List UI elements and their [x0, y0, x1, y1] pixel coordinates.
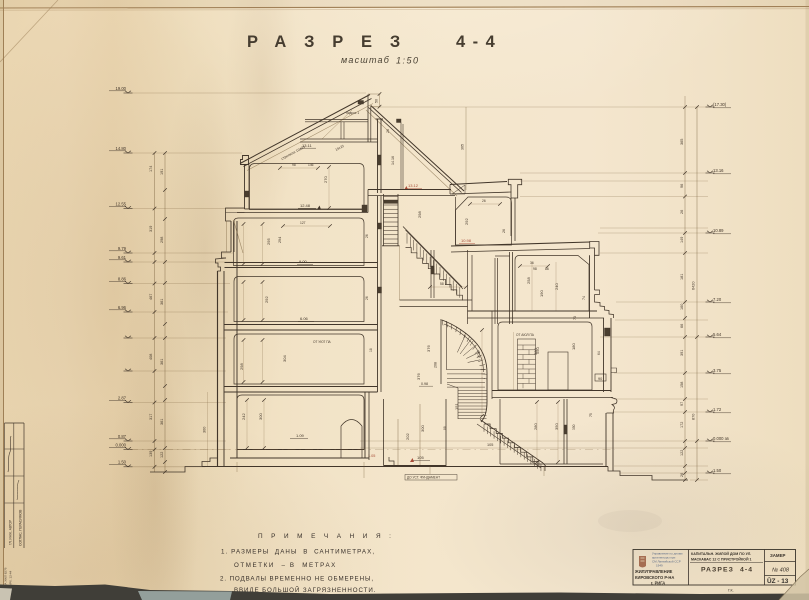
svg-text:240: 240	[554, 283, 559, 290]
svg-text:2. ПОДВАЛЫ ВРЕМЕННО НЕ ОБМЕРЕН: 2. ПОДВАЛЫ ВРЕМЕННО НЕ ОБМЕРЕНЫ,	[220, 576, 374, 583]
svg-text:146: 146	[308, 163, 314, 167]
svg-text:467: 467	[149, 294, 153, 300]
svg-text:ОТ АЮЛ ПА: ОТ АЮЛ ПА	[516, 333, 535, 337]
svg-text:151: 151	[454, 403, 459, 410]
svg-text:РАЗРЕЗ 4-4: РАЗРЕЗ 4-4	[701, 567, 753, 574]
svg-text:1.50: 1.50	[118, 460, 127, 465]
svg-text:5.64: 5.64	[713, 332, 722, 337]
svg-text:105: 105	[417, 455, 424, 460]
svg-text:127: 127	[300, 221, 306, 225]
svg-text:26: 26	[386, 129, 390, 133]
svg-text:174: 174	[149, 166, 153, 172]
svg-text:0.000 зв: 0.000 зв	[713, 436, 730, 441]
svg-text:№ 408: № 408	[772, 568, 790, 574]
svg-text:376: 376	[416, 373, 421, 380]
svg-text:50: 50	[375, 99, 379, 103]
svg-text:64: 64	[597, 351, 601, 355]
svg-text:1.72: 1.72	[713, 407, 722, 412]
svg-text:14.16: 14.16	[391, 156, 395, 165]
svg-text:181: 181	[680, 274, 684, 280]
svg-text:10.98: 10.98	[461, 238, 472, 243]
svg-text:4-4: 4-4	[456, 33, 502, 51]
svg-text:361: 361	[160, 419, 164, 425]
svg-text:242: 242	[241, 413, 246, 420]
svg-text:58: 58	[440, 282, 444, 286]
svg-text:208: 208	[434, 362, 438, 368]
svg-text:202: 202	[405, 433, 410, 440]
svg-text:ŪZ - 13: ŪZ - 13	[767, 577, 789, 585]
svg-text:ГЛ. ИНЖ. АВТОР: ГЛ. ИНЖ. АВТОР	[9, 520, 13, 545]
svg-text:408: 408	[149, 354, 153, 360]
svg-text:ГА УЖЛ 8276: ГА УЖЛ 8276	[4, 567, 8, 586]
svg-text:КАПИТАЛЬН. ЖИЛОЙ ДОМ ПО УЛ.: КАПИТАЛЬН. ЖИЛОЙ ДОМ ПО УЛ.	[691, 552, 751, 556]
svg-text:9.79: 9.79	[118, 246, 127, 251]
svg-text:90: 90	[598, 377, 602, 381]
svg-text:26: 26	[680, 210, 684, 214]
svg-text:26: 26	[365, 234, 369, 238]
svg-text:26: 26	[365, 296, 369, 300]
svg-text:139: 139	[149, 451, 153, 457]
svg-text:270: 270	[323, 176, 328, 183]
svg-text:13.12: 13.12	[408, 183, 419, 188]
svg-text:300: 300	[258, 413, 263, 420]
svg-text:298: 298	[160, 237, 164, 243]
svg-text:СОГЛАС. ГЕРАСИМОВ: СОГЛАС. ГЕРАСИМОВ	[19, 509, 23, 546]
svg-text:г. РИГА: г. РИГА	[651, 581, 665, 586]
svg-text:365: 365	[461, 144, 465, 150]
svg-text:П Р И М Е Ч А Н И Я :: П Р И М Е Ч А Н И Я :	[258, 533, 394, 540]
svg-text:88: 88	[443, 426, 447, 430]
svg-text:300: 300	[203, 427, 207, 433]
svg-text:1:50: 1:50	[396, 56, 420, 66]
svg-text:26: 26	[482, 199, 486, 203]
svg-text:1. РАЗМЕРЫ ДАНЫ В САНТИМЕТР: 1. РАЗМЕРЫ ДАНЫ В САНТИМЕТРАХ,	[221, 549, 375, 556]
svg-text:376: 376	[426, 345, 431, 352]
svg-text:19х23: 19х23	[335, 144, 345, 152]
svg-text:172: 172	[680, 422, 684, 428]
svg-text:96: 96	[680, 184, 684, 188]
svg-text:ЖИЛУПРАВЛЕНИЕ: ЖИЛУПРАВЛЕНИЕ	[634, 569, 673, 574]
svg-text:365: 365	[680, 139, 684, 145]
svg-text:304: 304	[282, 355, 287, 362]
svg-text:105: 105	[487, 443, 493, 447]
svg-text:ЗАМЕР: ЗАМЕР	[770, 553, 786, 558]
svg-text:73: 73	[573, 316, 577, 320]
svg-text:19.00: 19.00	[116, 86, 127, 91]
svg-text:258: 258	[526, 277, 531, 284]
svg-text:МАСКАВАС 12 С ПРИСТРОЙКОЙ 1: МАСКАВАС 12 С ПРИСТРОЙКОЙ 1	[691, 558, 752, 562]
svg-text:9.61: 9.61	[118, 255, 127, 260]
svg-text:КИРОВСКОГО Р-НА: КИРОВСКОГО Р-НА	[635, 575, 674, 580]
svg-text:3.75: 3.75	[713, 368, 722, 373]
svg-text:98: 98	[533, 267, 537, 271]
svg-text:180: 180	[571, 343, 576, 350]
svg-text:97: 97	[680, 402, 684, 406]
svg-text:0.98: 0.98	[421, 382, 428, 386]
svg-text:АРХ. 12-44: АРХ. 12-44	[9, 570, 13, 586]
svg-text:317: 317	[149, 414, 153, 420]
svg-text:295: 295	[266, 238, 271, 245]
svg-text:18: 18	[369, 348, 373, 352]
svg-text:190: 190	[539, 290, 544, 297]
svg-text:ОТМЕТКИ – В МЕТРАХ: ОТМЕТКИ – В МЕТРАХ	[234, 562, 337, 569]
svg-text:6420: 6420	[692, 282, 696, 290]
svg-text:158: 158	[680, 382, 684, 388]
svg-text:380: 380	[533, 348, 538, 355]
svg-text:870: 870	[692, 414, 696, 420]
svg-text:подкос 1: подкос 1	[346, 111, 359, 115]
svg-text:9.00: 9.00	[299, 259, 308, 264]
svg-text:6.06: 6.06	[300, 316, 309, 321]
svg-text:1949: 1949	[656, 564, 663, 568]
svg-text:98: 98	[292, 163, 296, 167]
svg-text:12.48: 12.48	[300, 203, 311, 208]
svg-text:РАЗРЕЗ: РАЗРЕЗ	[247, 33, 418, 51]
svg-text:350: 350	[572, 424, 576, 430]
svg-text:13.11: 13.11	[302, 143, 312, 148]
svg-text:294: 294	[278, 237, 282, 243]
svg-text:0.000: 0.000	[116, 442, 127, 447]
svg-text:13.16: 13.16	[713, 168, 724, 173]
svg-text:8.86: 8.86	[118, 276, 127, 281]
svg-text:(17.30): (17.30)	[713, 102, 727, 107]
svg-text:26: 26	[502, 229, 506, 233]
svg-text:292: 292	[264, 296, 269, 303]
svg-text:12.55: 12.55	[116, 201, 127, 206]
svg-text:10.89: 10.89	[713, 228, 724, 233]
svg-text:191: 191	[160, 169, 164, 175]
svg-text:319: 319	[149, 226, 153, 232]
svg-text:66: 66	[680, 324, 684, 328]
svg-text:75: 75	[589, 413, 593, 417]
svg-text:300: 300	[420, 425, 425, 432]
svg-text:7.20: 7.20	[713, 297, 722, 302]
svg-text:масштаб: масштаб	[341, 55, 390, 65]
svg-text:1.50: 1.50	[713, 468, 722, 473]
svg-text:361: 361	[160, 299, 164, 305]
svg-text:74: 74	[582, 296, 586, 300]
svg-text:1.09: 1.09	[296, 433, 305, 438]
svg-text:ДО УСТ. ФУНДАМЕНТ: ДО УСТ. ФУНДАМЕНТ	[407, 476, 440, 480]
svg-text:26: 26	[680, 473, 684, 477]
svg-text:ОТ УЮТ ПА: ОТ УЮТ ПА	[313, 340, 332, 344]
svg-text:14.80: 14.80	[116, 146, 127, 151]
svg-text:0.87: 0.87	[118, 434, 127, 439]
svg-text:122: 122	[160, 452, 164, 458]
svg-text:391: 391	[680, 350, 684, 356]
svg-text:298: 298	[417, 211, 422, 218]
svg-text:160: 160	[680, 304, 684, 310]
svg-text:122: 122	[680, 450, 684, 456]
svg-text:36: 36	[530, 261, 534, 265]
svg-text:149: 149	[680, 237, 684, 243]
svg-text:86: 86	[545, 267, 549, 271]
svg-text:292: 292	[464, 218, 469, 225]
svg-text:2.87: 2.87	[118, 395, 127, 400]
svg-text:6.96: 6.96	[118, 305, 127, 310]
svg-text:Г.К.: Г.К.	[728, 589, 734, 593]
svg-text:361: 361	[160, 359, 164, 365]
